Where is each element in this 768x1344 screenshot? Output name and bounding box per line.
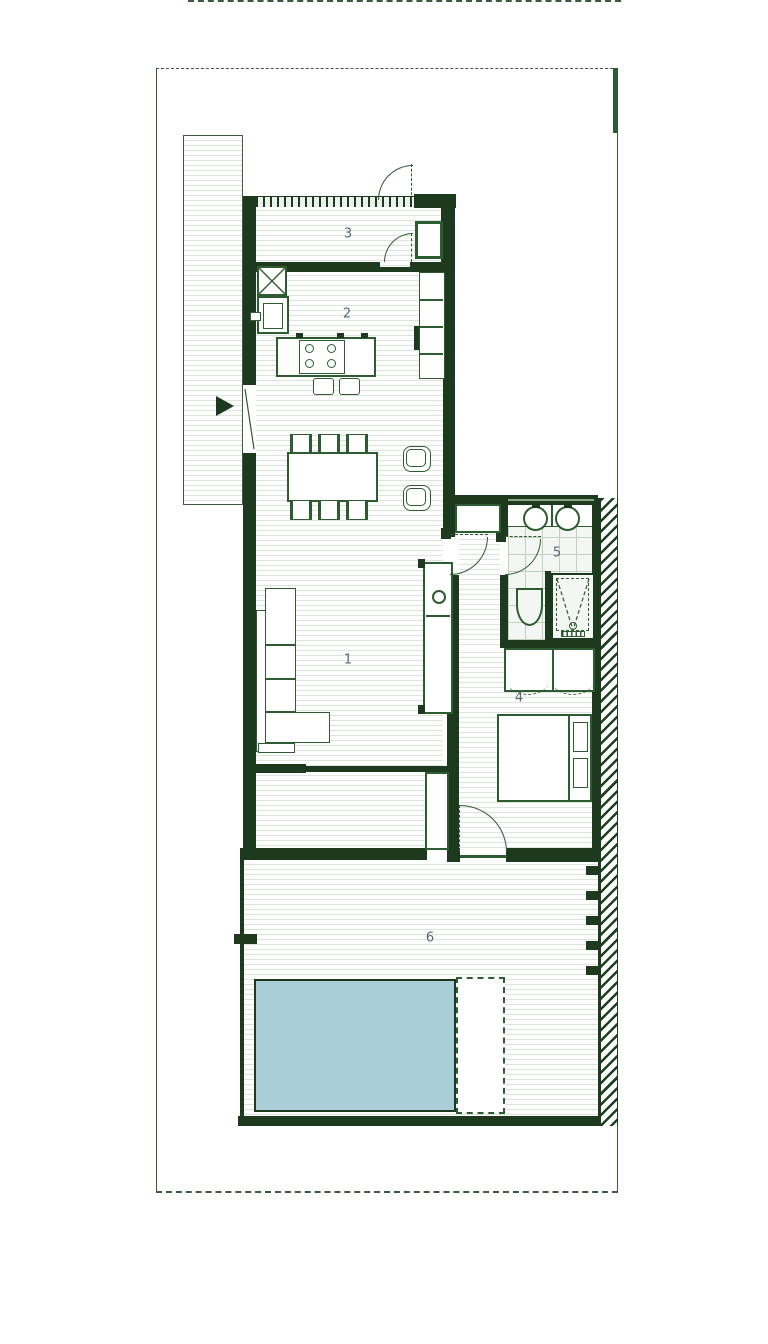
bathroom-label: 5: [553, 547, 561, 560]
terrace-step-mark: [586, 966, 599, 975]
vestibule-closet: [455, 504, 501, 533]
shower-drain-lines-icon: [556, 578, 590, 634]
fridge-x-icon: [259, 268, 285, 294]
left-wall-window: [243, 383, 256, 455]
bed-headboard-line: [568, 716, 570, 800]
living-room-label: 1: [344, 654, 352, 667]
armchair: [403, 446, 431, 472]
kitchen-sink-basin: [263, 303, 283, 329]
hall-door-leaf: [411, 233, 413, 262]
shower-drain-grate: [561, 631, 585, 637]
column-tab: [418, 705, 425, 714]
hall-closet: [415, 221, 443, 259]
cabinet-handle: [414, 326, 419, 350]
hall-door-threshold: [380, 267, 413, 272]
bath-bedroom-wall: [500, 640, 598, 648]
dining-chair: [290, 500, 312, 520]
terrace-left-wall: [240, 860, 244, 1118]
armchair: [403, 485, 431, 511]
wing-top-wall-window-line: [508, 499, 594, 501]
bedroom-label: 4: [515, 692, 523, 705]
entrance-arrow-icon: [216, 396, 234, 416]
kitchen-sink-unit: [257, 296, 289, 334]
bedroom-door-threshold: [460, 855, 507, 858]
kitchen-tap: [250, 312, 261, 321]
column-tab: [418, 559, 425, 568]
terrace-step-mark: [586, 916, 599, 925]
dining-chair: [318, 500, 340, 520]
pillow: [573, 722, 588, 752]
terrace-bottom-wall: [238, 1116, 618, 1126]
burner: [305, 344, 314, 353]
hall-label: 3: [344, 228, 352, 241]
terrace-step-mark: [586, 941, 599, 950]
armchair-inner: [406, 449, 426, 467]
sofa-seat: [265, 679, 296, 712]
gate-door-leaf: [411, 164, 413, 200]
sofa-base-strip: [258, 743, 295, 753]
bar-stool: [313, 378, 334, 395]
terrace-label: 6: [426, 932, 434, 945]
porch-bottom-wall: [240, 848, 427, 860]
fireplace-divider: [426, 615, 450, 617]
sink-tap-icon: [564, 503, 572, 508]
fireplace-flue-icon: [432, 590, 446, 604]
street-boundary-line: [188, 0, 621, 3]
hall-bottom-wall-right: [410, 262, 443, 272]
cabinet-divider: [420, 326, 443, 328]
kitchen-label: 2: [343, 308, 351, 321]
dining-chair: [346, 434, 368, 454]
sink-tap-icon: [532, 503, 540, 508]
fridge-unit: [257, 266, 287, 296]
porch-door-panel: [425, 772, 449, 850]
window-swing-line: [243, 385, 256, 453]
pool-deck-dashed: [456, 977, 505, 1114]
bath-vestibule-wall-lower: [500, 575, 508, 648]
left-exterior-wall: [243, 196, 256, 860]
bar-stool: [339, 378, 360, 395]
counter-divider: [551, 505, 553, 527]
dining-chair: [290, 434, 312, 454]
cooktop: [299, 340, 345, 374]
sink-basin-icon: [523, 506, 548, 531]
dining-table: [287, 452, 378, 502]
burner: [327, 344, 336, 353]
sofa-seat-end: [265, 588, 296, 645]
terrace-step-mark: [586, 891, 599, 900]
cabinet-divider: [420, 299, 443, 301]
sofa-seat: [265, 645, 296, 679]
armchair-inner: [406, 488, 426, 506]
floor-plan-canvas: 1 2 3 4 5 6: [0, 0, 768, 1344]
kitchen-tall-cabinets: [419, 272, 445, 379]
bathroom-door-leaf: [505, 536, 541, 538]
island-edge-mark: [361, 333, 368, 338]
bed: [497, 714, 592, 802]
vestibule-door-leaf: [450, 534, 488, 536]
terrace-bench: [234, 934, 257, 944]
sliding-door-bar-left: [243, 764, 306, 773]
island-edge-mark: [296, 333, 303, 338]
pool: [254, 979, 456, 1112]
sink-basin-icon: [555, 506, 580, 531]
burner: [305, 359, 314, 368]
burner: [327, 359, 336, 368]
pillow: [573, 758, 588, 788]
cabinet-divider: [420, 353, 443, 355]
driveway-strip: [183, 135, 243, 505]
island-edge-mark: [337, 333, 344, 338]
bedroom-door-leaf: [459, 805, 461, 852]
boundary-right-post: [613, 68, 618, 133]
sofa-chaise: [265, 712, 330, 743]
bedroom-bottom-wall: [506, 848, 598, 862]
terrace-step-mark: [586, 866, 599, 875]
dining-chair: [346, 500, 368, 520]
dining-chair: [318, 434, 340, 454]
hall-right-wall: [441, 196, 455, 272]
fireplace-column: [423, 562, 453, 714]
shower-stall: [551, 573, 595, 640]
side-hatch-strip: [598, 498, 618, 1126]
